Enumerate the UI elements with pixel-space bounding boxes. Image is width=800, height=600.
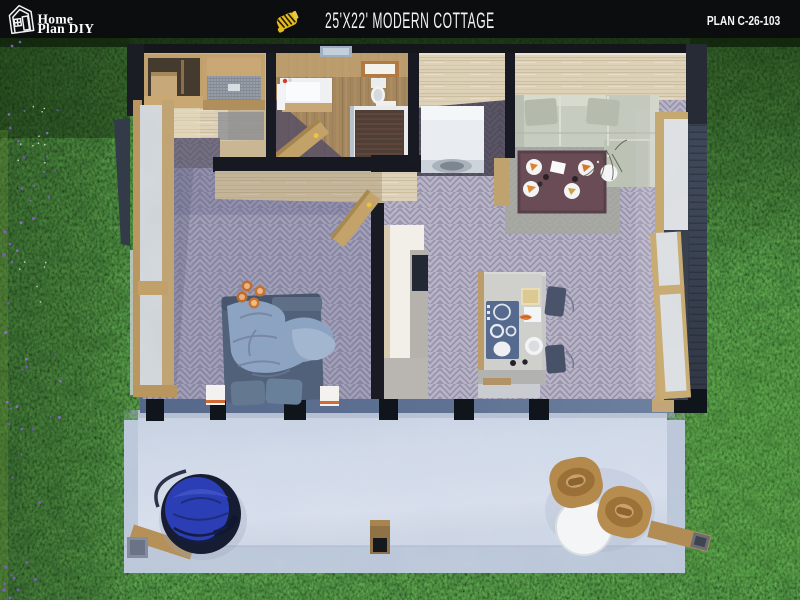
svg-text:PLAN C-26-103: PLAN C-26-103 [707,15,780,28]
svg-text:25'X22' MODERN COTTAGE: 25'X22' MODERN COTTAGE [325,8,495,33]
svg-text:Plan DIY: Plan DIY [38,21,95,36]
